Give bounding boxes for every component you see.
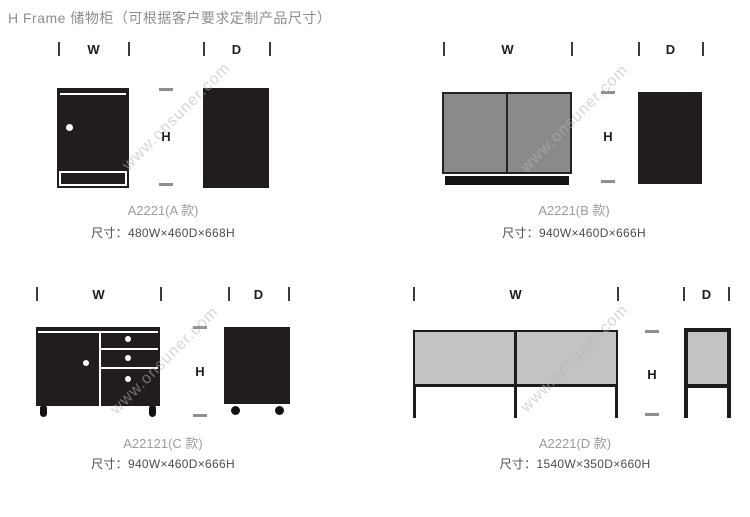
- width-tick-right: [128, 42, 130, 56]
- height-tick-top: [645, 330, 659, 333]
- width-tick-right: [617, 287, 619, 301]
- size-spec: 尺寸：480W×460D×668H: [63, 224, 263, 241]
- depth-tick-right: [702, 42, 704, 56]
- width-dim-label: W: [413, 287, 618, 302]
- drawer-handle-dot: [125, 376, 131, 382]
- height-tick-top: [159, 88, 173, 91]
- frame-leg: [413, 387, 416, 418]
- size-spec: 尺寸：940W×460D×666H: [63, 455, 263, 472]
- side-view-drawing: [203, 88, 269, 188]
- height-dim-label: H: [594, 129, 622, 144]
- side-view-drawing: [684, 328, 731, 388]
- model-caption: A2221(D 款): [475, 433, 675, 452]
- cabinet-top-trim: [60, 93, 126, 95]
- frame-leg: [727, 388, 731, 418]
- width-dim-label: W: [36, 287, 161, 302]
- depth-tick-right: [728, 287, 730, 301]
- drawer-handle-dot: [125, 336, 131, 342]
- depth-dim-label: D: [638, 42, 703, 57]
- depth-dim-label: D: [683, 287, 730, 302]
- depth-tick-right: [269, 42, 271, 56]
- drawer-handle-dot: [125, 355, 131, 361]
- width-tick-right: [160, 287, 162, 301]
- cabinet-top-trim: [38, 331, 158, 333]
- height-tick-bottom: [193, 414, 207, 417]
- cabinet-foot: [149, 406, 156, 417]
- frame-leg: [615, 387, 618, 418]
- door-divider: [506, 94, 508, 172]
- drawer-divider: [101, 348, 158, 350]
- catalog-page: H Frame 储物柜（可根据客户要求定制产品尺寸） www.onsuner.c…: [0, 0, 750, 517]
- model-caption: A22121(C 款): [63, 433, 263, 452]
- cabinet-plinth: [445, 176, 569, 185]
- height-tick-bottom: [601, 180, 615, 183]
- size-spec: 尺寸：940W×460D×666H: [474, 224, 674, 241]
- door-drawer-divider: [99, 333, 101, 406]
- width-dim-label: W: [58, 42, 129, 57]
- height-dim-label: H: [186, 364, 214, 379]
- door-handle-dot: [66, 124, 73, 131]
- height-tick-bottom: [645, 413, 659, 416]
- door-handle-dot: [83, 360, 89, 366]
- height-dim-label: H: [638, 367, 666, 382]
- page-title: H Frame 储物柜（可根据客户要求定制产品尺寸）: [8, 8, 331, 28]
- caster-wheel: [275, 406, 284, 415]
- model-caption: A2221(B 款): [474, 200, 674, 219]
- depth-dim-label: D: [228, 287, 289, 302]
- size-spec: 尺寸：1540W×350D×660H: [475, 455, 675, 472]
- cabinet-plinth: [59, 171, 127, 186]
- height-tick-bottom: [159, 183, 173, 186]
- depth-dim-label: D: [203, 42, 270, 57]
- front-view-drawing: [57, 88, 129, 188]
- side-view-drawing: [638, 92, 702, 184]
- caster-wheel: [231, 406, 240, 415]
- side-view-drawing: [224, 327, 290, 404]
- width-tick-right: [571, 42, 573, 56]
- depth-tick-right: [288, 287, 290, 301]
- model-caption: A2221(A 款): [63, 200, 263, 219]
- width-dim-label: W: [443, 42, 572, 57]
- cabinet-foot: [40, 406, 47, 417]
- panel-divider: [514, 332, 517, 384]
- frame-leg: [684, 388, 688, 418]
